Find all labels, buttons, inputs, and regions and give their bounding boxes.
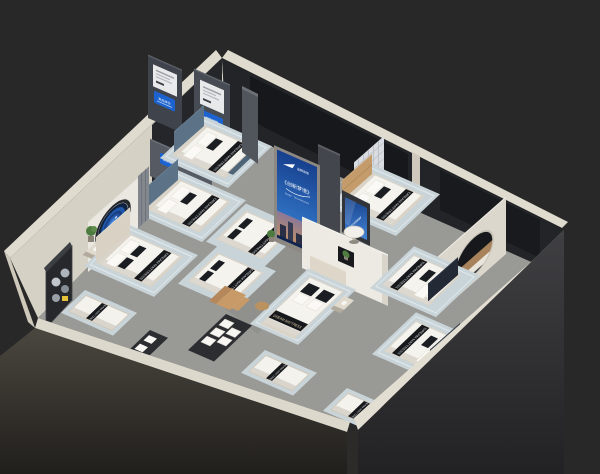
plant-foliage	[267, 230, 275, 238]
bottom-corner-cap	[347, 430, 358, 474]
table-top	[344, 226, 364, 238]
drape-fold	[145, 169, 146, 222]
city-silhouette	[288, 221, 293, 242]
mattress-roll	[52, 278, 61, 287]
wood-stool	[255, 302, 269, 311]
price-tag	[62, 296, 68, 301]
mattress-roll	[61, 285, 69, 293]
drape-fold	[141, 172, 142, 225]
plant-pot	[269, 237, 274, 242]
gray-partition	[242, 86, 258, 164]
showroom-3d-scene: 新品体验 智能睡眠 健康睡眠 DREAM MATTRESS	[0, 0, 600, 474]
showroom-render: 新品体验 智能睡眠 健康睡眠 DREAM MATTRESS	[0, 0, 600, 474]
drape	[138, 166, 149, 228]
mattress-roll	[61, 269, 70, 278]
plant-pot	[88, 236, 94, 242]
table-base	[349, 240, 359, 244]
plant-foliage	[91, 226, 97, 232]
mattress-roll	[52, 294, 60, 302]
